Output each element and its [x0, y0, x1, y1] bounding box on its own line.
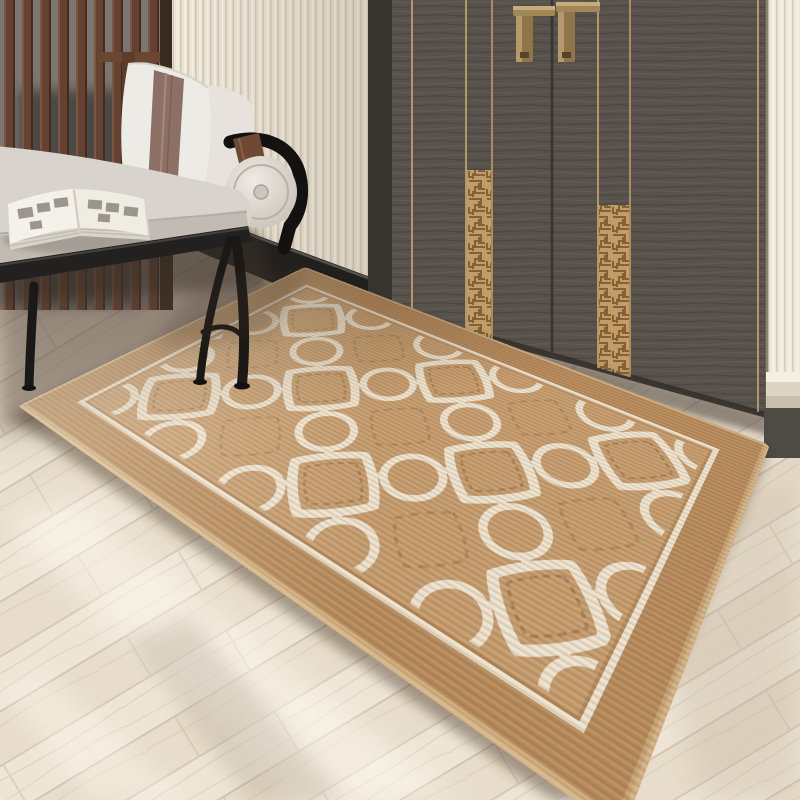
scene-room-photo: [0, 0, 800, 800]
daybed-bench: [0, 63, 312, 391]
bench-shadow-on-rug: [152, 264, 312, 348]
foreground-layer: [0, 0, 800, 800]
